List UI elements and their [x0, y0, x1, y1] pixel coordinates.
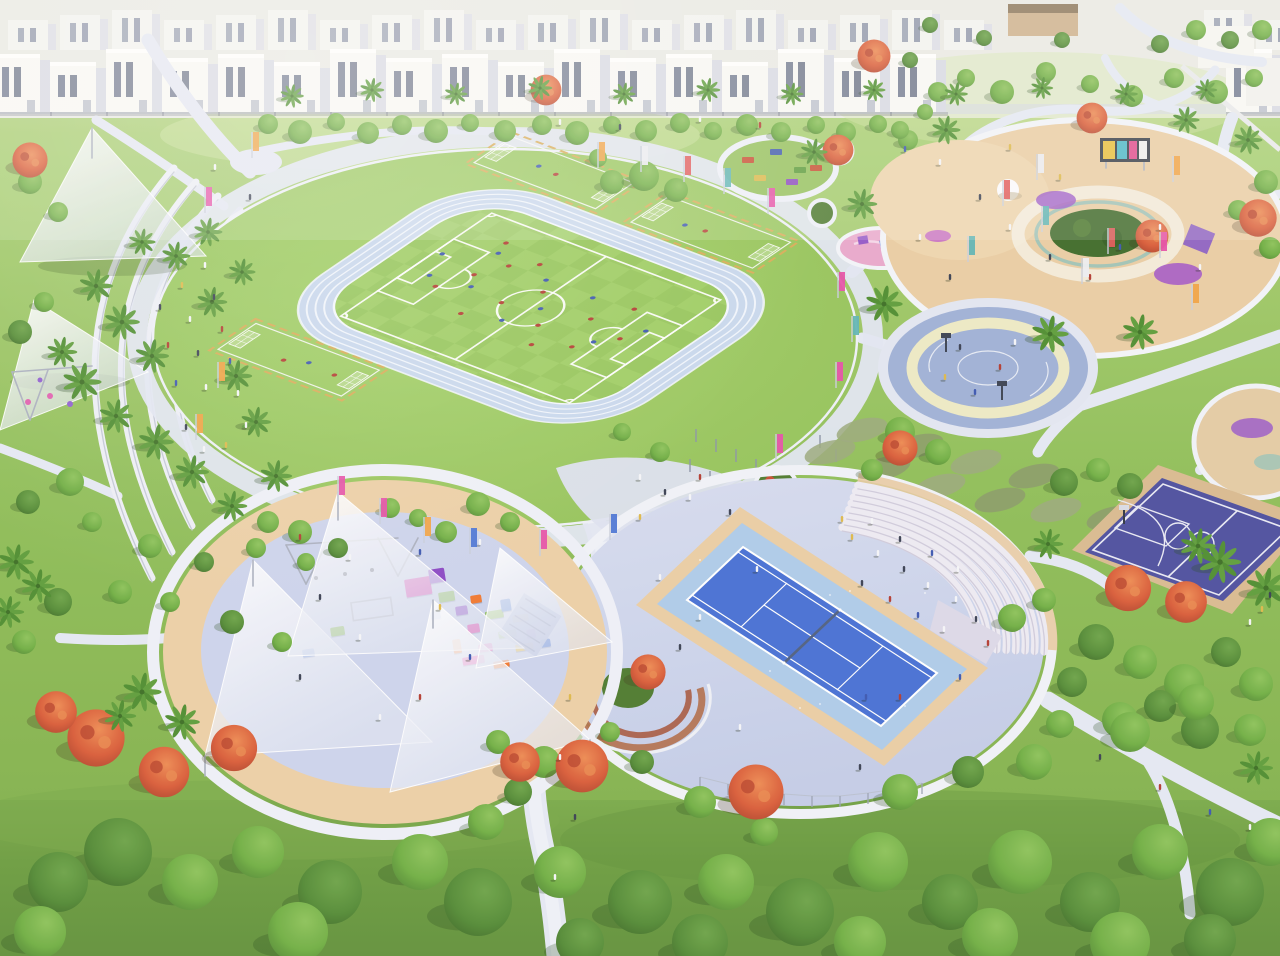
- park-rendering: [0, 0, 1280, 956]
- sunlight-haze: [0, 0, 1280, 956]
- park-aerial-scene: [0, 0, 1280, 956]
